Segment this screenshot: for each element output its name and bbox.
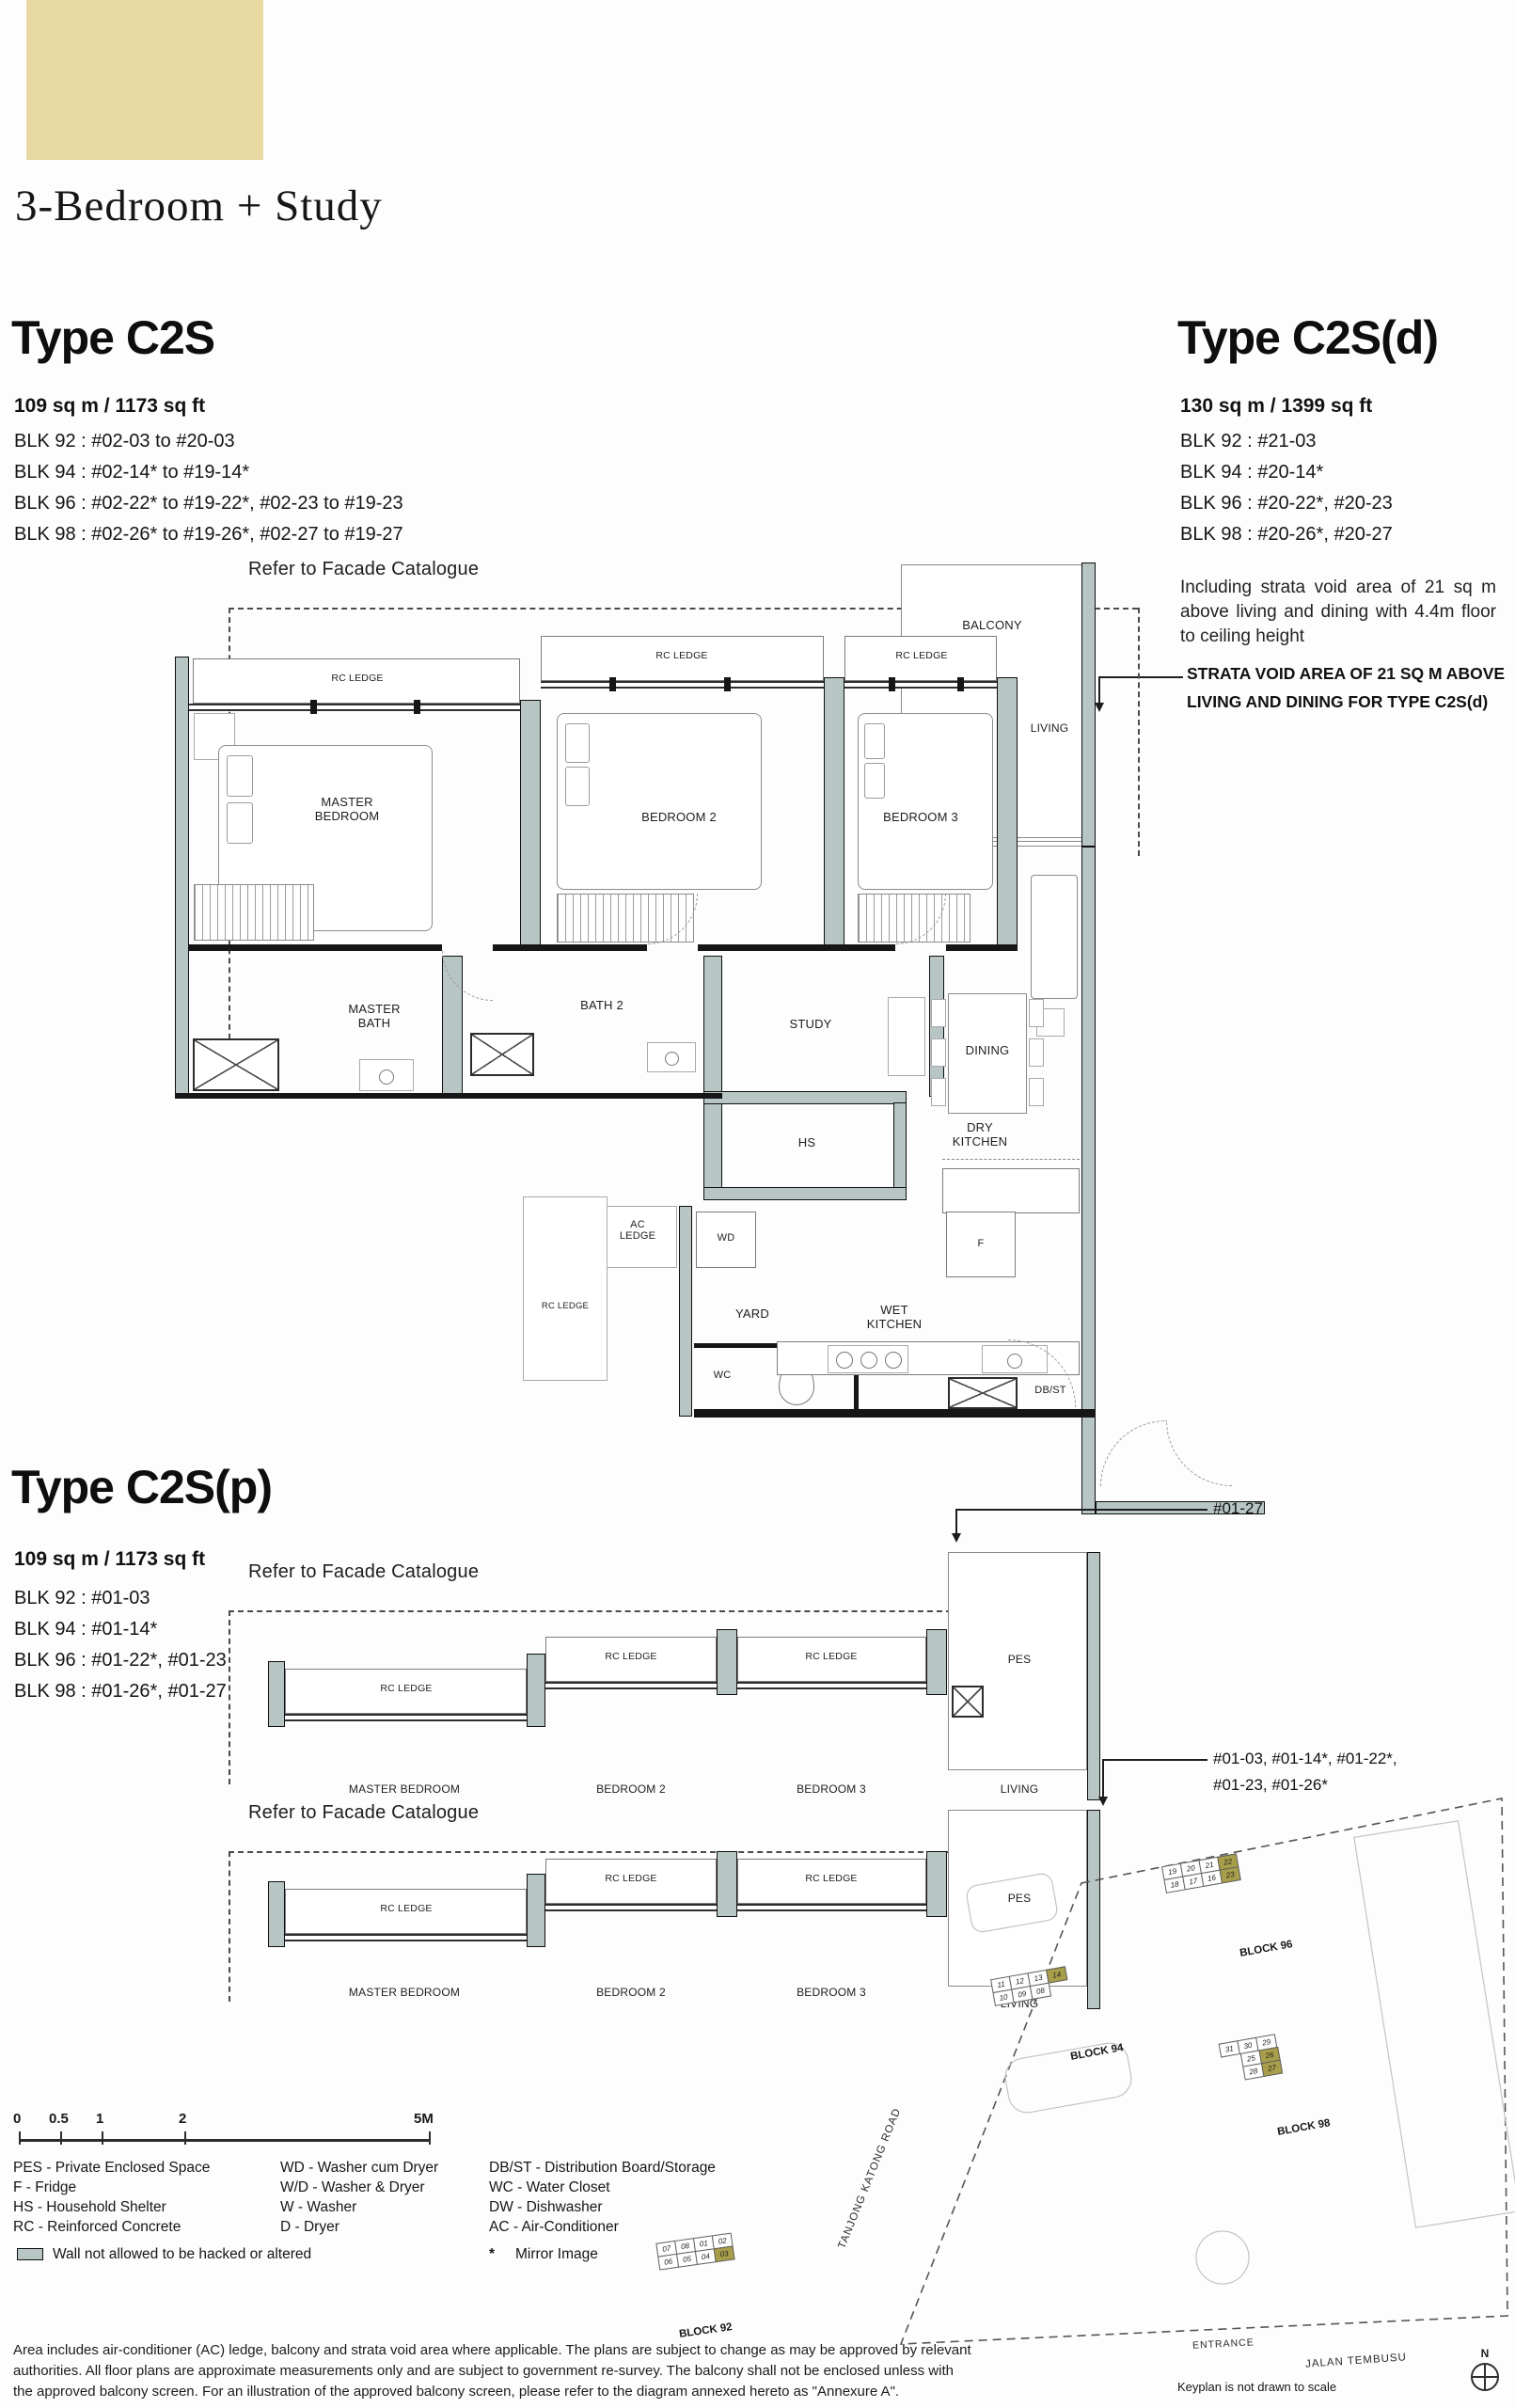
bath2-vanity bbox=[647, 1042, 696, 1072]
scale-label-05: 0.5 bbox=[49, 2111, 69, 2127]
strip2-band-master bbox=[285, 1934, 527, 1941]
strip2-pier-1 bbox=[527, 1874, 545, 1947]
floorplan-brochure-page: 3-Bedroom + Study Type C2S 109 sq m / 11… bbox=[0, 0, 1515, 2408]
type-c2sp-blk-1: BLK 92 : #01-03 bbox=[14, 1588, 150, 1609]
strata-void-callout-line2: LIVING AND DINING FOR TYPE C2S(d) bbox=[1187, 692, 1488, 712]
type-c2sd-blk-2: BLK 94 : #20-14* bbox=[1180, 462, 1323, 483]
strip1-band-master bbox=[285, 1714, 527, 1721]
wall-right-upper bbox=[1081, 562, 1096, 847]
legend-wc: WC - Water Closet bbox=[489, 2179, 610, 2196]
scale-tick bbox=[102, 2131, 103, 2145]
strip1-leader-h bbox=[955, 1509, 1207, 1511]
type-c2s-blk-1: BLK 92 : #02-03 to #20-03 bbox=[14, 431, 235, 452]
disclaimer-line1: Area includes air-conditioner (AC) ledge… bbox=[13, 2342, 971, 2358]
wall-study-west bbox=[703, 956, 722, 1200]
master-bath-label-l2: BATH bbox=[358, 1016, 391, 1030]
scale-tick bbox=[60, 2131, 62, 2145]
ac-ledge-label: AC LEDGE bbox=[609, 1219, 666, 1243]
wall-entry-stub-v bbox=[1081, 1417, 1096, 1514]
legend-dbst: DB/ST - Distribution Board/Storage bbox=[489, 2160, 716, 2177]
scale-label-5m: 5M bbox=[414, 2111, 434, 2127]
strip1-ledge-master-label: RC LEDGE bbox=[340, 1684, 472, 1695]
master-bedroom-label-l1: MASTER bbox=[321, 795, 372, 809]
strip2-dashed-left bbox=[229, 1851, 230, 2002]
balcony-label: BALCONY bbox=[945, 619, 1039, 633]
mullion-5 bbox=[889, 677, 895, 691]
strip2-callout-line1: #01-03, #01-14*, #01-22*, bbox=[1213, 1750, 1397, 1768]
master-bedroom-label-l2: BEDROOM bbox=[315, 809, 380, 823]
type-c2s-area: 109 sq m / 1173 sq ft bbox=[14, 395, 205, 418]
mullion-3 bbox=[609, 677, 616, 691]
wall-bath-bottom bbox=[175, 1093, 722, 1099]
wd-label: WD bbox=[703, 1232, 749, 1244]
wall-kitchen-left bbox=[679, 1206, 692, 1417]
wall-left-exterior bbox=[175, 657, 189, 1099]
strip1-pier-1 bbox=[527, 1654, 545, 1727]
legend-pes: PES - Private Enclosed Space bbox=[13, 2160, 210, 2177]
ac-ledge-label-l2: LEDGE bbox=[620, 1230, 655, 1242]
scale-bar bbox=[19, 2139, 431, 2142]
strip2-ledge-master-label: RC LEDGE bbox=[340, 1904, 472, 1915]
study-label: STUDY bbox=[764, 1018, 858, 1032]
wall-bedroom-corridor bbox=[189, 944, 1018, 951]
dining-chair bbox=[931, 1038, 946, 1067]
disclaimer-line2: authorities. All floor plans are approxi… bbox=[13, 2363, 954, 2379]
rc-ledge-bed2-label: RC LEDGE bbox=[616, 651, 748, 662]
pillow bbox=[864, 723, 885, 759]
compass-icon bbox=[1471, 2363, 1499, 2391]
keyplan-boundary bbox=[564, 1768, 1515, 2389]
type-c2sd-title: Type C2S(d) bbox=[1177, 310, 1438, 365]
facade-note-strip1: Refer to Facade Catalogue bbox=[248, 1561, 479, 1582]
legend-mirror-note: Mirror Image bbox=[515, 2246, 598, 2263]
ac-ledge-label-l1: AC bbox=[630, 1219, 645, 1230]
legend-d: D - Dryer bbox=[280, 2219, 339, 2236]
scale-label-0: 0 bbox=[13, 2111, 21, 2127]
strip2-pier-0 bbox=[268, 1881, 285, 1947]
unit-cell-highlighted: 03 bbox=[714, 2245, 735, 2262]
type-c2sp-blk-2: BLK 94 : #01-14* bbox=[14, 1619, 157, 1640]
legend-w: W - Washer bbox=[280, 2199, 356, 2216]
wall-hs-top bbox=[703, 1091, 907, 1104]
wc-label: WC bbox=[703, 1370, 741, 1381]
dry-kitchen-label-l2: KITCHEN bbox=[953, 1134, 1007, 1149]
strip2-master-label: MASTER BEDROOM bbox=[334, 1987, 475, 1999]
mullion-1 bbox=[310, 700, 317, 714]
strip1-pier-0 bbox=[268, 1661, 285, 1727]
type-c2sp-blk-3: BLK 96 : #01-22*, #01-23 bbox=[14, 1650, 227, 1671]
legend-hs: HS - Household Shelter bbox=[13, 2199, 166, 2216]
living-sofa bbox=[1031, 875, 1078, 999]
type-c2s-blk-4: BLK 98 : #02-26* to #19-26*, #02-27 to #… bbox=[14, 524, 403, 546]
rc-ledge-yard-box bbox=[523, 1196, 608, 1381]
living-label: LIVING bbox=[1016, 722, 1083, 735]
legend-f: F - Fridge bbox=[13, 2179, 76, 2196]
basin bbox=[379, 1069, 394, 1085]
scale-label-1: 1 bbox=[96, 2111, 103, 2127]
master-bath-label-l1: MASTER bbox=[348, 1002, 400, 1016]
wall-hs-right bbox=[893, 1102, 907, 1189]
window-band-bed2 bbox=[541, 681, 824, 689]
basin bbox=[665, 1052, 679, 1066]
strata-callout-leader-h bbox=[1098, 676, 1183, 678]
type-c2s-blk-2: BLK 94 : #02-14* to #19-14* bbox=[14, 462, 249, 483]
strip1-dashed-left bbox=[229, 1610, 230, 1784]
page-title: 3-Bedroom + Study bbox=[15, 181, 383, 231]
hob-burner bbox=[836, 1352, 853, 1369]
brand-color-block bbox=[26, 0, 263, 160]
master-bath-label: MASTER BATH bbox=[325, 1003, 423, 1030]
rc-ledge-master-label: RC LEDGE bbox=[292, 673, 423, 685]
hob-burner bbox=[860, 1352, 877, 1369]
wall-pier-master-bed2 bbox=[520, 700, 541, 951]
dining-chair bbox=[931, 999, 946, 1027]
dining-chair bbox=[1029, 1038, 1044, 1067]
entry-door-swing-2 bbox=[1100, 1420, 1166, 1486]
strip1-ledge-bed3-label: RC LEDGE bbox=[765, 1652, 897, 1663]
strata-callout-arrow bbox=[1095, 703, 1104, 712]
bed2-bed bbox=[557, 713, 762, 890]
wet-kitchen-label-l2: KITCHEN bbox=[867, 1317, 922, 1331]
strip1-ledge-bed2-label: RC LEDGE bbox=[565, 1652, 697, 1663]
wall-kitchen-bottom bbox=[694, 1409, 1096, 1418]
legend-dw: DW - Dishwasher bbox=[489, 2199, 603, 2216]
legend-wall-note: Wall not allowed to be hacked or altered bbox=[53, 2246, 311, 2263]
strip1-dashed-top bbox=[229, 1610, 952, 1612]
strip1-master-label: MASTER BEDROOM bbox=[334, 1783, 475, 1796]
type-c2sd-note: Including strata void area of 21 sq m ab… bbox=[1180, 576, 1496, 650]
wet-kitchen-label: WET KITCHEN bbox=[844, 1304, 944, 1331]
pillow bbox=[565, 767, 590, 806]
hs-label: HS bbox=[786, 1136, 828, 1150]
door-gap bbox=[647, 944, 698, 951]
bedroom3-label: BEDROOM 3 bbox=[864, 811, 977, 825]
strata-callout-leader-v bbox=[1098, 676, 1100, 703]
master-bedroom-label: MASTER BEDROOM bbox=[292, 796, 402, 823]
strip1-pier-3 bbox=[926, 1629, 947, 1695]
rc-ledge-yard-label: RC LEDGE bbox=[527, 1302, 604, 1312]
legend-wall-swatch bbox=[17, 2248, 43, 2260]
mullion-6 bbox=[957, 677, 964, 691]
facade-note-strip2: Refer to Facade Catalogue bbox=[248, 1802, 479, 1823]
type-c2sp-area: 109 sq m / 1173 sq ft bbox=[14, 1548, 205, 1571]
wall-pier-bed2-bed3 bbox=[824, 677, 844, 951]
mullion-2 bbox=[414, 700, 420, 714]
door-gap bbox=[895, 944, 946, 951]
scale-tick bbox=[184, 2131, 186, 2145]
dry-wet-kitchen-dashed bbox=[942, 1159, 1080, 1160]
dining-chair bbox=[1029, 999, 1044, 1027]
strip1-arrow bbox=[952, 1533, 961, 1543]
compass-n-label: N bbox=[1473, 2348, 1497, 2360]
type-c2sd-blk-4: BLK 98 : #20-26*, #20-27 bbox=[1180, 524, 1393, 546]
legend-wd: WD - Washer cum Dryer bbox=[280, 2160, 438, 2177]
type-c2sp-blk-4: BLK 98 : #01-26*, #01-27 bbox=[14, 1681, 227, 1703]
legend-ac: AC - Air-Conditioner bbox=[489, 2219, 619, 2236]
rc-ledge-bed3-label: RC LEDGE bbox=[856, 651, 987, 662]
pillow bbox=[864, 763, 885, 799]
window-band-master bbox=[189, 704, 520, 711]
bedroom2-label: BEDROOM 2 bbox=[623, 811, 735, 825]
scale-label-2: 2 bbox=[179, 2111, 186, 2127]
type-c2s-blk-3: BLK 96 : #02-22* to #19-22*, #02-23 to #… bbox=[14, 493, 403, 515]
strip1-shaft bbox=[952, 1686, 984, 1718]
strip2-leader-h bbox=[1102, 1759, 1207, 1761]
entry-door-swing-3 bbox=[1166, 1420, 1232, 1486]
wet-kitchen-label-l1: WET bbox=[880, 1303, 907, 1317]
master-vanity bbox=[359, 1059, 414, 1091]
legend-mirror-star: * bbox=[489, 2246, 495, 2263]
type-c2s-title: Type C2S bbox=[11, 310, 214, 365]
dining-chair bbox=[1029, 1078, 1044, 1106]
strip1-pes-label: PES bbox=[991, 1654, 1048, 1666]
dining-chair bbox=[931, 1078, 946, 1106]
study-desk bbox=[888, 997, 925, 1076]
wall-pier-bed3-living bbox=[997, 677, 1018, 951]
pillow bbox=[227, 755, 253, 797]
fridge-label: F bbox=[957, 1238, 1004, 1249]
bath2-label: BATH 2 bbox=[564, 999, 639, 1013]
facade-note-main: Refer to Facade Catalogue bbox=[248, 559, 479, 579]
mullion-4 bbox=[724, 677, 731, 691]
pillow bbox=[565, 723, 590, 763]
keyplan-not-to-scale: Keyplan is not drawn to scale bbox=[1177, 2380, 1336, 2394]
type-c2sd-blk-3: BLK 96 : #20-22*, #20-23 bbox=[1180, 493, 1393, 515]
master-shower bbox=[193, 1038, 279, 1091]
hob bbox=[828, 1345, 908, 1373]
facade-dashed-right bbox=[1138, 608, 1140, 856]
bath2-shower bbox=[470, 1033, 534, 1076]
bed3-bed bbox=[858, 713, 993, 890]
disclaimer-line3: the approved balcony screen. For an illu… bbox=[13, 2384, 899, 2400]
dry-kitchen-counter bbox=[942, 1168, 1080, 1213]
strip1-band-bed3 bbox=[737, 1682, 926, 1689]
type-c2sd-blk-1: BLK 92 : #21-03 bbox=[1180, 431, 1317, 452]
legend-w-d: W/D - Washer & Dryer bbox=[280, 2179, 425, 2196]
strip1-leader-v bbox=[955, 1509, 957, 1533]
wall-hs-bottom bbox=[703, 1187, 907, 1200]
type-c2sp-title: Type C2S(p) bbox=[11, 1460, 272, 1514]
dining-label: DINING bbox=[952, 1044, 1023, 1058]
strip1-wall-right bbox=[1087, 1552, 1100, 1800]
legend-rc: RC - Reinforced Concrete bbox=[13, 2219, 181, 2236]
dry-kitchen-label: DRY KITCHEN bbox=[931, 1121, 1029, 1149]
wall-right-lower bbox=[1081, 847, 1096, 1417]
strata-void-callout-line1: STRATA VOID AREA OF 21 SQ M ABOVE bbox=[1187, 664, 1505, 684]
scale-tick bbox=[19, 2131, 21, 2145]
hob-burner bbox=[885, 1352, 902, 1369]
scale-tick bbox=[429, 2131, 431, 2145]
strip1-band-bed2 bbox=[545, 1682, 717, 1689]
strip1-pier-2 bbox=[717, 1629, 737, 1695]
strip1-callout: #01-27 bbox=[1213, 1499, 1263, 1518]
window-band-bed3 bbox=[844, 681, 997, 689]
yard-label: YARD bbox=[724, 1307, 781, 1322]
pillow bbox=[227, 802, 253, 844]
dry-kitchen-label-l1: DRY bbox=[967, 1120, 993, 1134]
master-wardrobe bbox=[194, 884, 314, 941]
type-c2sd-area: 130 sq m / 1399 sq ft bbox=[1180, 395, 1372, 418]
dbst-box bbox=[948, 1377, 1018, 1409]
